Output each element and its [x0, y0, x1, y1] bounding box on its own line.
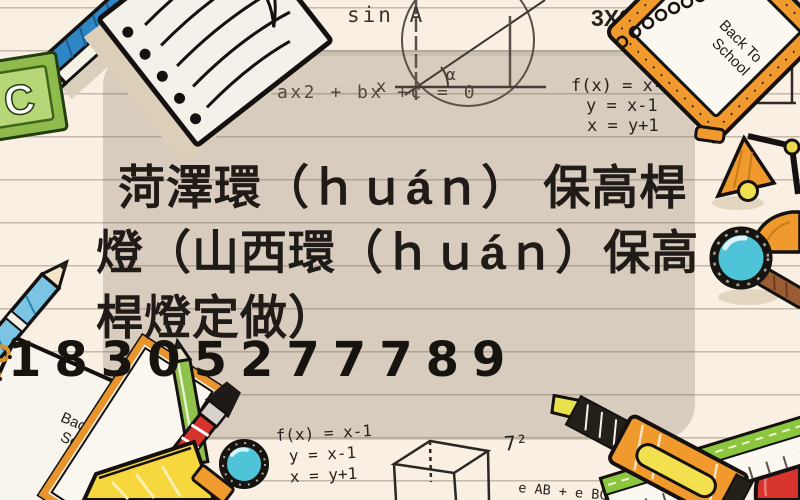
seven-squared-label: 7² — [503, 430, 529, 456]
formula-block-bottom: f(x) = x-1 y = x-1 x = y+1 — [275, 421, 374, 487]
headline-line-1: 菏澤環（ｈｕáｎ） 保高桿 — [96, 155, 716, 220]
headline-line-2: 燈（山西環（ｈｕáｎ）保高 — [96, 220, 716, 285]
xy-formula-bottom: x = y+1 — [289, 464, 357, 487]
sin-label: sin A — [347, 3, 425, 27]
fx-formula-bottom: f(x) = x-1 — [275, 421, 372, 445]
back-to-school-banner: x α ax2 + bx +c = 0 sin A f(x) = x-1 y =… — [0, 0, 800, 500]
cube-diagram — [394, 441, 489, 500]
yx-formula: y = x-1 — [586, 96, 658, 116]
phone-number: 18305277789 — [8, 332, 518, 388]
headline: 菏澤環（ｈｕáｎ） 保高桿 燈（山西環（ｈｕáｎ）保高 桿燈定做） — [96, 155, 716, 350]
letter-card-doodle: C — [0, 52, 67, 142]
yx-formula-bottom: y = x-1 — [288, 443, 356, 466]
xy-formula: x = y+1 — [587, 116, 659, 136]
